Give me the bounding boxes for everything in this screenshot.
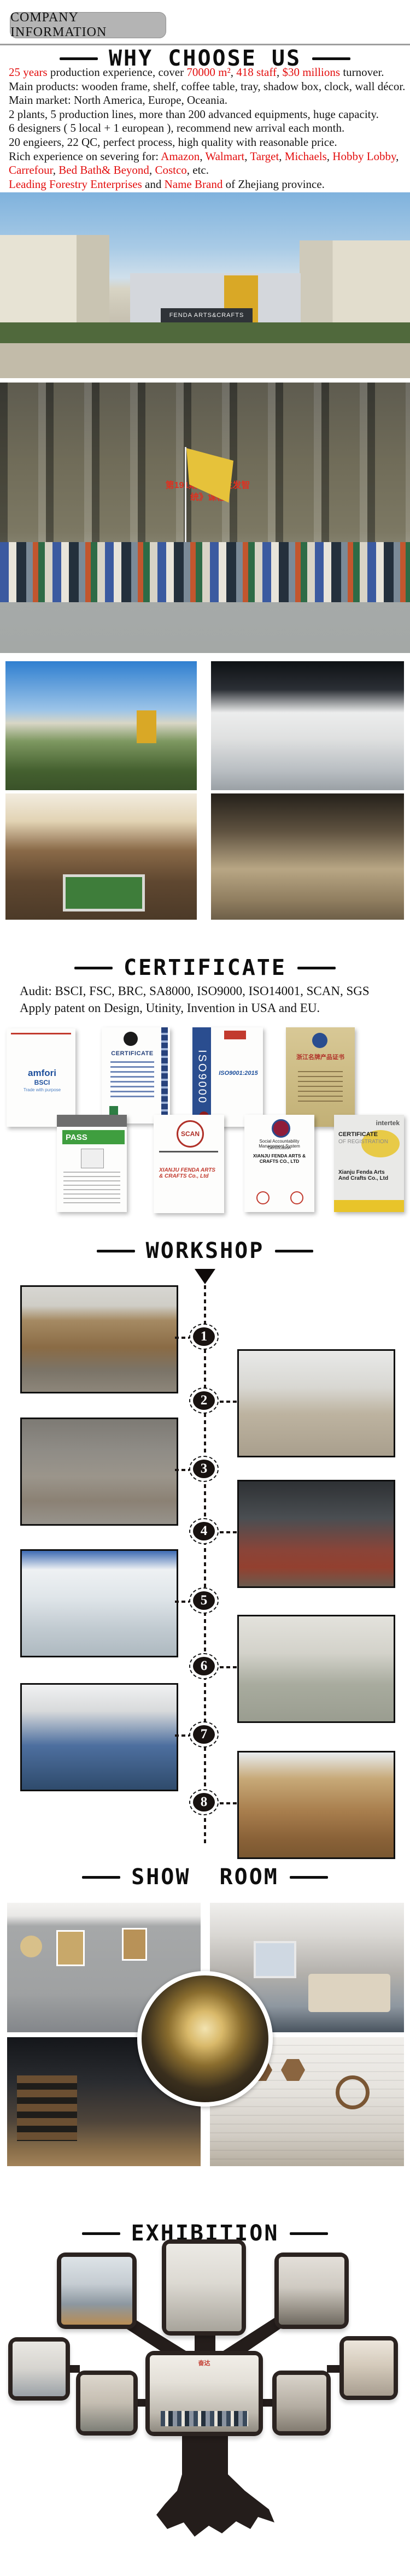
step-connector	[220, 1666, 237, 1668]
step-badge-6: 6	[189, 1653, 221, 1681]
exhibition-photo	[80, 2375, 133, 2431]
wall-clock-decor	[20, 1936, 42, 1957]
name-brand-certificate: 浙江名牌产品证书	[286, 1027, 355, 1127]
center-booth-sign: 奋达	[150, 2359, 259, 2367]
sa8000-certificate: Social Accountability Management System …	[244, 1115, 314, 1212]
step-ring: 6	[189, 1653, 219, 1679]
workshop-photo-frame-racks	[20, 1418, 178, 1526]
wit-logo	[224, 1031, 246, 1039]
cert-body-lines	[298, 1071, 343, 1102]
title-dash-right	[275, 1250, 313, 1252]
scan-org: XIANJU FENDA ARTS & CRAFTS Co., Ltd	[159, 1167, 219, 1179]
step-number: 7	[193, 1725, 215, 1744]
wall-frame-decor	[56, 1930, 85, 1966]
meeting-room-photo	[5, 793, 197, 920]
step-number: 6	[193, 1657, 215, 1675]
sa8000-org: XIANJU FENDA ARTS & CRAFTS CO., LTD	[248, 1153, 311, 1164]
title-dash-left	[60, 57, 98, 60]
bsci-logo-text: BSCI	[12, 1079, 72, 1086]
intertek-subtitle: OF REGISTRATION	[338, 1139, 388, 1145]
title-dash-left	[74, 967, 113, 969]
red-star-seal-icon	[290, 1191, 303, 1204]
company-information-badge: COMPANY INFORMATION	[10, 12, 166, 38]
intertek-title: CERTIFICATE	[338, 1131, 378, 1138]
exhibition-photo	[13, 2342, 66, 2396]
bsci-certificate: amfori BSCI Trade with purpose	[7, 1028, 75, 1127]
pass-banner: PASS	[62, 1130, 125, 1144]
why-line-1: 25 years production experience, cover 70…	[9, 66, 406, 80]
frame-shelves-decor	[17, 2075, 77, 2141]
exhibition-photo	[277, 2375, 326, 2431]
design-studio-photo	[211, 793, 404, 920]
why-line-6: 20 engieers, 22 QC, perfect process, hig…	[9, 136, 406, 150]
step-badge-1: 1	[189, 1324, 221, 1352]
workshop-photo-finished-warehouse	[237, 1751, 395, 1859]
showroom-label: SHOW ROOM	[131, 1865, 279, 1890]
exhibition-photo	[344, 2340, 394, 2396]
round-mirror-decor	[336, 2075, 370, 2109]
name-brand-title: 浙江名牌产品证书	[289, 1052, 352, 1061]
title-dash-right	[290, 2232, 328, 2235]
cert-rule	[159, 1151, 218, 1152]
step-ring: 3	[189, 1456, 219, 1482]
scan-seal: SCAN	[177, 1120, 204, 1148]
cert-gray-header	[57, 1115, 127, 1127]
step-badge-2: 2	[189, 1387, 221, 1416]
round-emblem-icon	[312, 1033, 327, 1048]
workshop-title: WORKSHOP	[0, 1238, 410, 1263]
workshop-photo-timber-warehouse	[20, 1285, 178, 1393]
exhibition-photo: 奋达	[150, 2355, 259, 2432]
group-photo-crowd	[0, 542, 410, 602]
why-choose-us-text: 25 years production experience, cover 70…	[9, 66, 406, 191]
certificate-title: CERTIFICATE	[0, 955, 410, 980]
title-dash-right	[297, 967, 336, 969]
bed-decor	[308, 1974, 390, 2012]
sa8000-line2: Certification	[248, 1145, 311, 1150]
exhibition-frame-visitors	[274, 2252, 349, 2329]
workshop-label: WORKSHOP	[146, 1238, 265, 1263]
why-line-3: Main market: North America, Europe, Ocea…	[9, 93, 406, 108]
meeting-room-green-table	[63, 874, 145, 911]
cert-ornate-border	[161, 1027, 168, 1124]
certificate-label: CERTIFICATE	[124, 955, 286, 980]
group-photo: 第191期《全员生发智 统》课程	[0, 383, 410, 653]
scan-certificate: SCAN XIANJU FENDA ARTS & CRAFTS Co., Ltd	[154, 1115, 224, 1213]
booth-team-row	[161, 2411, 248, 2426]
red-star-seal-icon	[256, 1191, 270, 1204]
fsc-seal-icon	[124, 1032, 138, 1046]
intertek-org: Xianju Fenda Arts And Crafts Co., Ltd	[338, 1169, 393, 1181]
header-divider	[0, 44, 410, 45]
workshop-photo-qc-packing-line	[20, 1683, 178, 1791]
step-badge-5: 5	[189, 1587, 221, 1616]
step-connector	[220, 1802, 237, 1804]
why-line-8: Leading Forestry Enterprises and Name Br…	[9, 178, 406, 192]
step-ring: 8	[189, 1789, 219, 1815]
exhibition-photo	[279, 2257, 344, 2325]
factory-trees	[0, 322, 410, 343]
campus-courtyard-photo	[5, 661, 197, 790]
why-line-2: Main products: wooden frame, shelf, coff…	[9, 80, 406, 94]
factory-gate-sign: FENDA ARTS&CRAFTS	[161, 308, 253, 322]
product-thumbnail	[81, 1149, 104, 1168]
iso9000-certificate: ISO9000 ISO9001:2015	[192, 1027, 263, 1127]
intertek-logo-text: intertek	[376, 1119, 400, 1127]
exhibition-photo	[166, 2244, 242, 2331]
brc-pass-certificate: PASS	[57, 1115, 127, 1212]
timeline-dashed-line	[204, 1285, 206, 1846]
factory-front-photo: FENDA ARTS&CRAFTS	[0, 192, 410, 378]
step-number: 1	[193, 1327, 215, 1346]
title-dash-left	[82, 2232, 120, 2235]
title-dash-left	[82, 1876, 120, 1879]
patent-line: Apply patent on Design, Utinity, Inventi…	[20, 999, 402, 1016]
wall-frame-decor	[122, 1928, 147, 1961]
workshop-photo-assembly-hall	[237, 1615, 395, 1723]
step-number: 4	[193, 1522, 215, 1540]
exhibition-frame-booth-wall	[8, 2337, 70, 2401]
title-dash-right	[290, 1876, 328, 1879]
window-decor	[254, 1941, 296, 1978]
step-number: 5	[193, 1591, 215, 1610]
workshop-photo-hanging-line	[20, 1549, 178, 1657]
showroom-title: SHOW ROOM	[0, 1865, 410, 1890]
step-connector	[220, 1401, 237, 1403]
campus-yellow-building	[137, 710, 156, 743]
exhibition-photo	[61, 2257, 132, 2325]
certificate-text: Audit: BSCI, FSC, BRC, SA8000, ISO9000, …	[20, 983, 402, 1016]
step-number: 3	[193, 1460, 215, 1478]
fsc-certificate: CERTIFICATE	[102, 1027, 170, 1124]
bsci-tagline: Trade with purpose	[12, 1087, 72, 1092]
step-number: 8	[193, 1793, 215, 1812]
step-badge-4: 4	[189, 1518, 221, 1546]
yellow-footer-strip	[334, 1200, 404, 1212]
audit-line: Audit: BSCI, FSC, BRC, SA8000, ISO9000, …	[20, 983, 402, 999]
title-dash-right	[312, 57, 350, 60]
intertek-certificate: intertek CERTIFICATE OF REGISTRATION Xia…	[334, 1115, 404, 1212]
arrow-down-icon	[195, 1269, 215, 1284]
cert-body-lines	[63, 1172, 120, 1205]
title-dash-left	[97, 1250, 135, 1252]
step-ring: 4	[189, 1518, 219, 1544]
cert-body-lines	[110, 1061, 154, 1099]
why-line-4: 2 plants, 5 production lines, more than …	[9, 108, 406, 122]
step-ring: 1	[189, 1324, 219, 1350]
amfori-logo-text: amfori	[12, 1068, 72, 1079]
fsc-cert-title: CERTIFICATE	[105, 1050, 160, 1057]
exhibition-frame-red-wall	[339, 2336, 398, 2400]
why-line-5: 6 designers ( 5 local + 1 european ), re…	[9, 121, 406, 136]
step-badge-8: 8	[189, 1789, 221, 1818]
step-ring: 2	[189, 1387, 219, 1414]
exhibition-frame-booth-crowd	[76, 2371, 138, 2436]
company-information-page: COMPANY INFORMATION WHY CHOOSE US 25 yea…	[0, 0, 410, 2576]
exhibition-frame-booth-displays	[162, 2239, 246, 2336]
showroom-circle-inset-photo	[137, 1971, 273, 2107]
led-line-2: 统》课程	[104, 492, 312, 504]
workshop-photo-machining-hall	[237, 1349, 395, 1457]
step-badge-3: 3	[189, 1456, 221, 1484]
step-ring: 7	[189, 1721, 219, 1748]
exhibition-frame-booth-team	[57, 2252, 137, 2329]
workshop-photo-spray-booth	[237, 1480, 395, 1588]
step-number: 2	[193, 1391, 215, 1410]
step-ring: 5	[189, 1587, 219, 1614]
step-connector	[220, 1531, 237, 1533]
exhibition-frame-center-booth: 奋达	[145, 2351, 263, 2436]
open-office-photo	[211, 661, 404, 790]
iso-standard-text: ISO9001:2015	[216, 1070, 260, 1077]
cert-red-rule	[11, 1033, 71, 1034]
step-badge-7: 7	[189, 1721, 221, 1750]
why-line-7: Rich experience on severing for: Amazon,…	[9, 150, 406, 178]
exhibition-frame-shop-visit	[272, 2371, 331, 2436]
factory-road	[0, 343, 410, 378]
sa8000-seal-icon	[272, 1119, 290, 1138]
